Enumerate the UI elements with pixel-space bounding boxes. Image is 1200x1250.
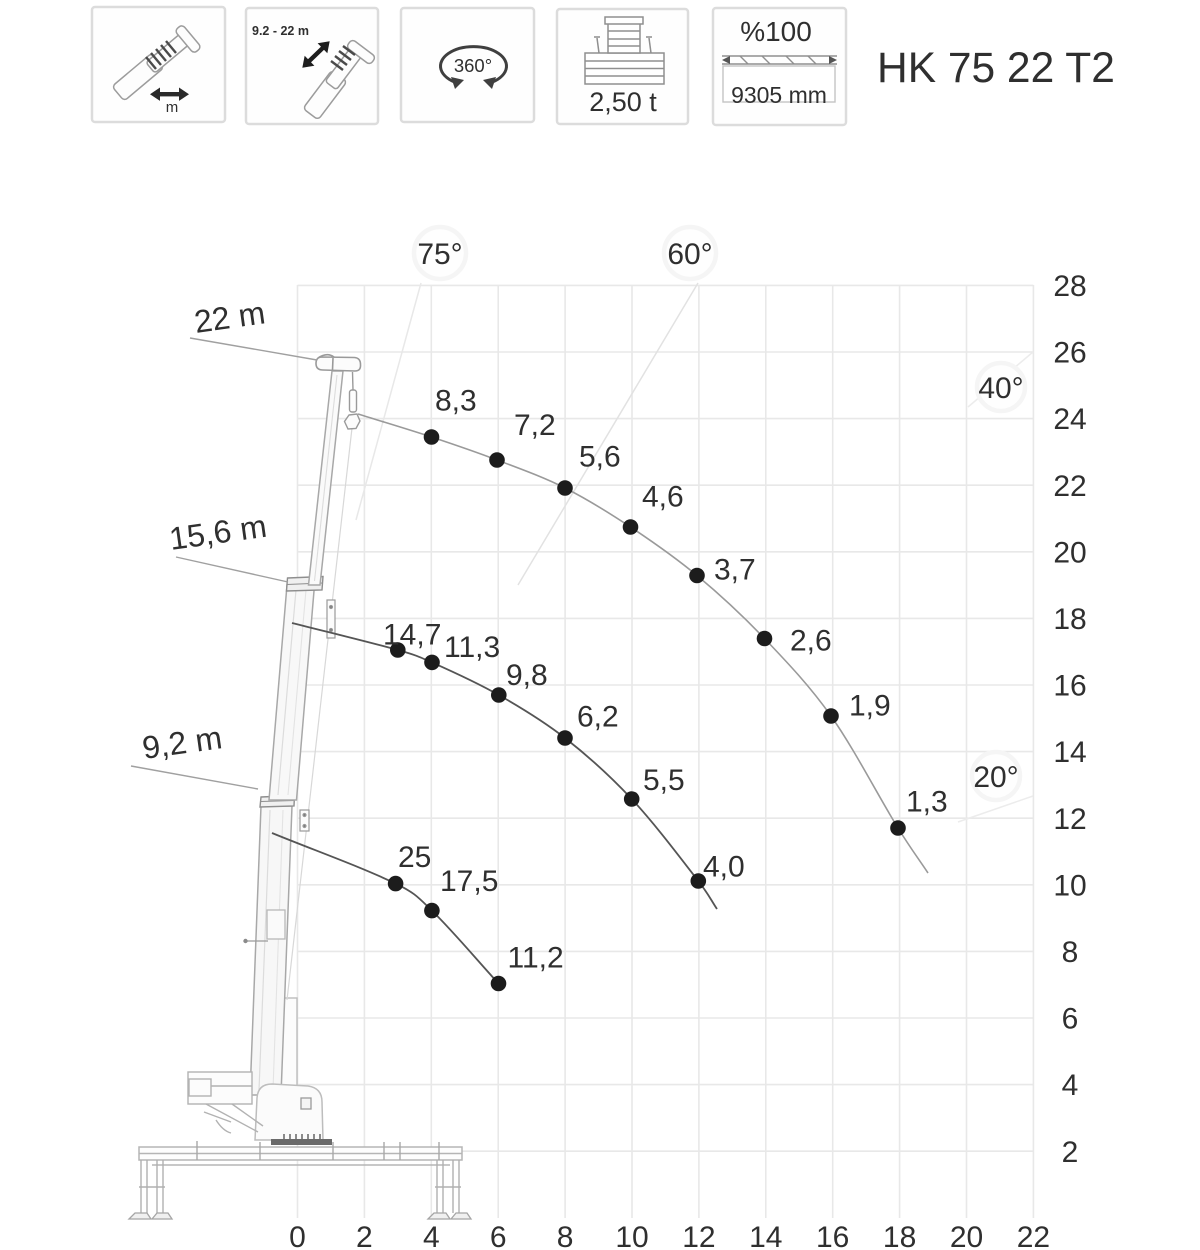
- svg-text:20°: 20°: [973, 761, 1018, 794]
- svg-text:2: 2: [1062, 1136, 1079, 1169]
- svg-text:6: 6: [490, 1221, 507, 1250]
- svg-text:40°: 40°: [978, 372, 1023, 405]
- svg-text:8,3: 8,3: [435, 385, 477, 418]
- svg-text:5,5: 5,5: [643, 764, 685, 797]
- svg-text:2,6: 2,6: [790, 625, 832, 658]
- svg-text:HK 75 22 T2: HK 75 22 T2: [877, 45, 1115, 92]
- svg-text:18: 18: [883, 1221, 916, 1250]
- svg-text:0: 0: [289, 1221, 306, 1250]
- svg-text:11,2: 11,2: [508, 942, 564, 975]
- svg-text:4: 4: [1062, 1069, 1079, 1102]
- svg-text:26: 26: [1053, 337, 1086, 370]
- svg-text:6: 6: [1062, 1003, 1079, 1036]
- svg-text:8: 8: [1062, 936, 1079, 969]
- svg-text:5,6: 5,6: [579, 441, 621, 474]
- svg-text:60°: 60°: [667, 238, 712, 271]
- svg-text:20: 20: [1053, 536, 1086, 569]
- svg-text:3,7: 3,7: [714, 554, 756, 587]
- svg-text:12: 12: [1053, 803, 1086, 836]
- svg-text:20: 20: [950, 1221, 983, 1250]
- svg-text:4,6: 4,6: [642, 481, 684, 514]
- svg-text:7,2: 7,2: [514, 409, 556, 442]
- svg-text:1,3: 1,3: [906, 786, 948, 819]
- svg-text:18: 18: [1053, 603, 1086, 636]
- svg-text:16: 16: [1053, 670, 1086, 703]
- svg-text:4,0: 4,0: [703, 851, 745, 884]
- svg-text:24: 24: [1053, 403, 1086, 436]
- svg-text:25: 25: [398, 841, 431, 874]
- svg-text:28: 28: [1053, 270, 1086, 303]
- svg-text:10: 10: [615, 1221, 648, 1250]
- svg-text:2,50 t: 2,50 t: [589, 87, 657, 117]
- svg-text:22: 22: [1053, 470, 1086, 503]
- svg-text:10: 10: [1053, 869, 1086, 902]
- svg-text:1,9: 1,9: [849, 690, 891, 723]
- svg-text:360°: 360°: [454, 55, 492, 76]
- svg-text:2: 2: [356, 1221, 373, 1250]
- svg-text:9305 mm: 9305 mm: [731, 82, 827, 108]
- svg-text:17,5: 17,5: [440, 865, 498, 898]
- svg-text:16: 16: [816, 1221, 849, 1250]
- svg-text:14: 14: [749, 1221, 782, 1250]
- svg-text:9.2 - 22 m: 9.2 - 22 m: [252, 24, 309, 38]
- svg-text:%100: %100: [740, 16, 812, 47]
- svg-text:9,8: 9,8: [506, 659, 548, 692]
- svg-text:8: 8: [557, 1221, 574, 1250]
- svg-text:75°: 75°: [417, 238, 462, 271]
- svg-text:14,7: 14,7: [383, 619, 441, 652]
- svg-text:22: 22: [1017, 1221, 1050, 1250]
- svg-text:6,2: 6,2: [577, 701, 619, 734]
- svg-text:11,3: 11,3: [444, 631, 500, 664]
- svg-text:14: 14: [1053, 736, 1086, 769]
- svg-text:m: m: [166, 99, 179, 116]
- svg-text:4: 4: [423, 1221, 440, 1250]
- svg-text:12: 12: [682, 1221, 715, 1250]
